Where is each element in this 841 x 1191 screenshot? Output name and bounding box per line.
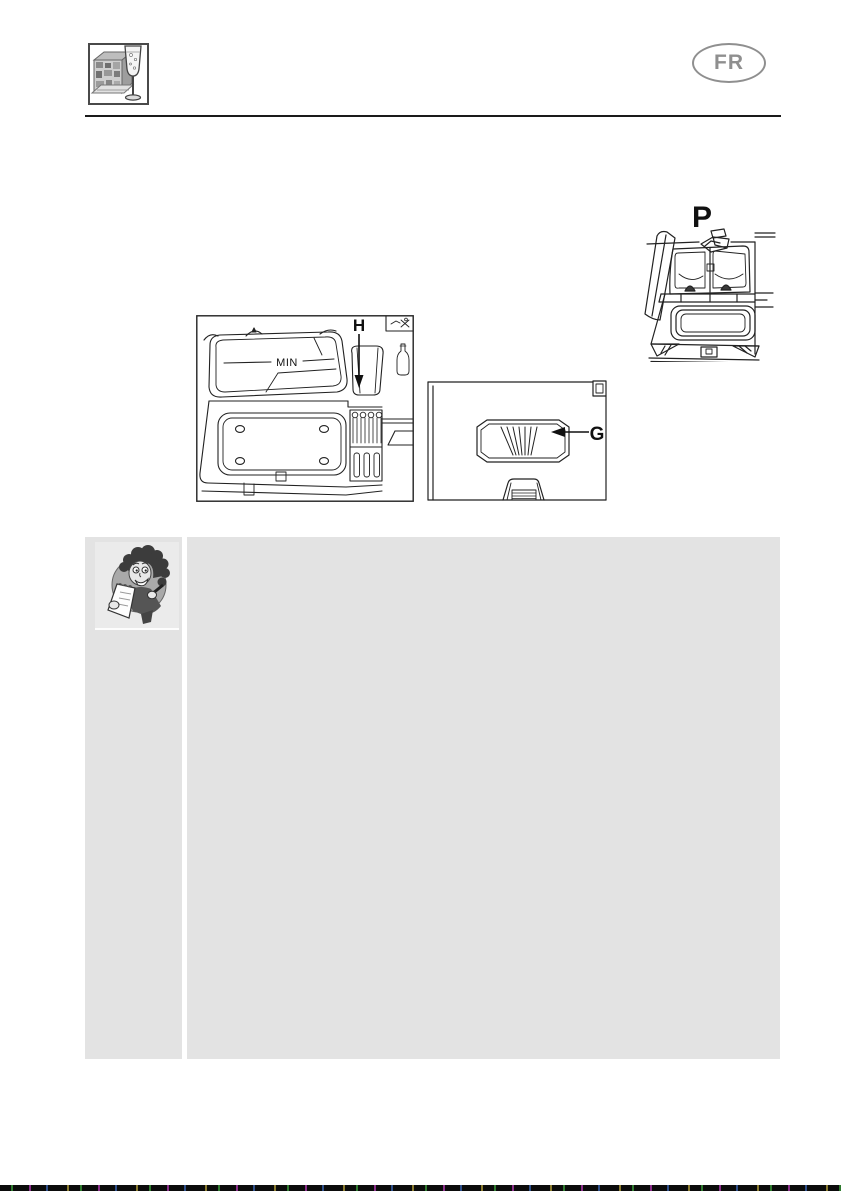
door-vent-slider-diagram: G xyxy=(425,380,610,502)
woman-with-notepad-icon xyxy=(95,542,179,628)
figure-door-vent: G xyxy=(425,380,610,502)
logo xyxy=(88,43,149,105)
figure-dispenser-fill-level: H MIN xyxy=(196,315,414,502)
figure-label-p: P xyxy=(692,201,712,234)
mascot-box xyxy=(95,542,179,630)
language-badge-label: FR xyxy=(714,51,744,75)
language-badge: FR xyxy=(692,43,766,83)
header-rule xyxy=(85,115,781,117)
figure-label-h: H xyxy=(353,316,365,335)
manual-page: FR xyxy=(0,0,841,1191)
figure-dispenser-open-lid: P xyxy=(641,194,783,362)
min-marking: MIN xyxy=(276,357,298,369)
dishwasher-with-wine-glass-icon xyxy=(88,43,149,105)
vent-arrow-icon xyxy=(551,427,565,437)
detergent-dispenser-fill-level-diagram: H MIN xyxy=(196,315,414,502)
note-panel-body xyxy=(187,537,780,1059)
note-panel-sidebar xyxy=(85,537,182,1059)
figure-label-g: G xyxy=(590,424,605,445)
detergent-dispenser-open-lid-diagram: P xyxy=(641,194,783,362)
scan-artifact-bar xyxy=(0,1185,841,1191)
